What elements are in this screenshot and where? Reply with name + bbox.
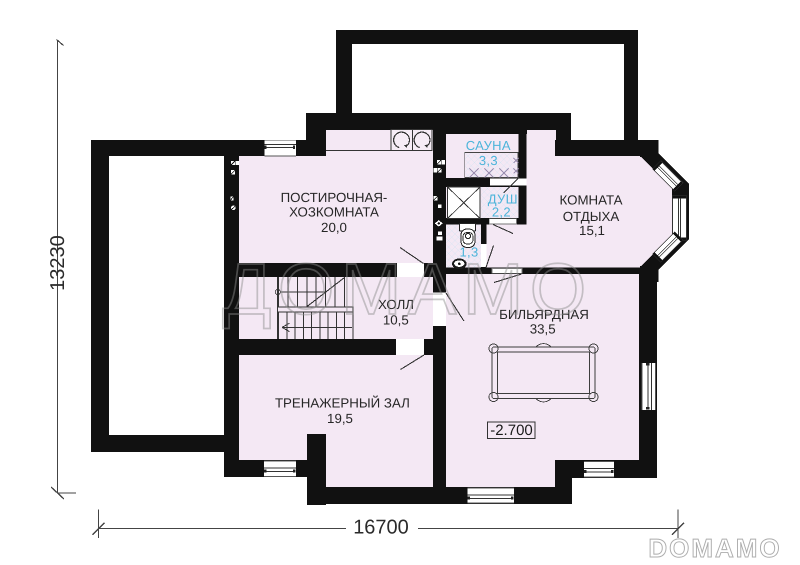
- svg-text:13230: 13230: [47, 235, 69, 291]
- svg-text:2,2: 2,2: [492, 205, 511, 220]
- svg-text:САУНА: САУНА: [466, 138, 511, 153]
- svg-text:ХОЗКОМНАТА: ХОЗКОМНАТА: [289, 205, 379, 220]
- svg-text:КОМНАТА: КОМНАТА: [560, 192, 623, 207]
- svg-text:3,3: 3,3: [479, 153, 498, 168]
- svg-text:16700: 16700: [353, 517, 409, 539]
- svg-text:-2.700: -2.700: [490, 422, 533, 439]
- svg-text:ТРЕНАЖЕРНЫЙ ЗАЛ: ТРЕНАЖЕРНЫЙ ЗАЛ: [275, 395, 410, 411]
- svg-text:DOMAMO: DOMAMO: [648, 533, 781, 563]
- svg-text:20,0: 20,0: [321, 220, 347, 235]
- svg-text:15,1: 15,1: [579, 223, 605, 238]
- svg-text:ДОМАМО: ДОМАМО: [222, 249, 593, 330]
- svg-text:ОТДЫХА: ОТДЫХА: [563, 209, 620, 224]
- svg-text:ПОСТИРОЧНАЯ-: ПОСТИРОЧНАЯ-: [281, 190, 388, 205]
- svg-text:19,5: 19,5: [327, 411, 353, 426]
